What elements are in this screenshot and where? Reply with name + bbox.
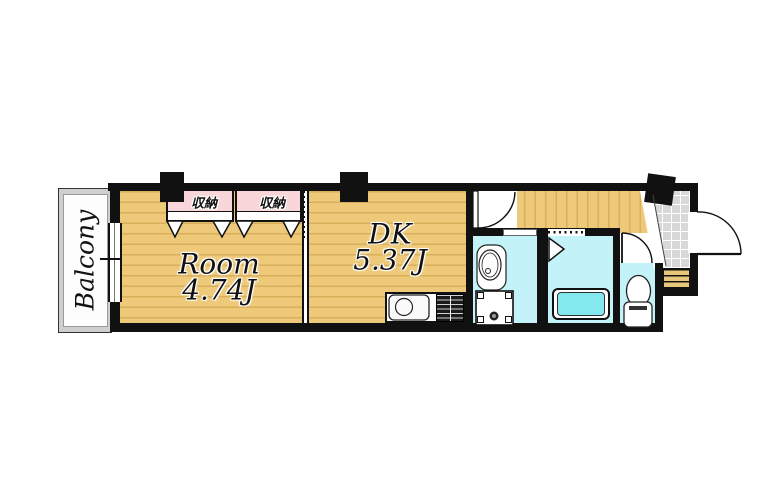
washroom-floor [473,236,537,323]
wall-steps-bottom [660,288,698,296]
wall-top [108,183,698,191]
room-area: 4.74J [178,277,259,303]
wall-dk-washroom [466,191,473,323]
entrance-steps [663,268,690,290]
entrance-door-swing-arc [697,212,741,254]
toilet-door-zone [618,233,655,263]
room-dk-partition-track [302,191,305,238]
room-label: Room 4.74J [178,251,259,303]
floor-plan: Balcony 収納 収納 [0,0,775,500]
hallway-floor [503,191,655,233]
dk-hall-door-zone [473,191,517,228]
dk-area: 5.37J [353,247,427,273]
pillar-3 [644,173,676,206]
wall-toilet-right [655,263,663,332]
bathtub-inner [557,292,605,316]
toilet-room-floor [620,263,655,323]
balcony-window-rail [114,223,115,302]
entrance-door-opening [688,212,700,253]
closet-1-label: 収納 [191,193,217,212]
wall-bath-toilet [613,228,620,331]
pillar-2 [340,172,368,202]
pillar-1 [160,172,184,202]
dk-label: DK 5.37J [353,221,427,273]
bath-door-track [548,229,585,236]
washroom-sliding-door [503,229,537,236]
closet-2-label: 収納 [259,193,285,212]
balcony-label: Balcony [71,210,100,311]
wall-bottom [110,323,663,332]
wall-washroom-bath [537,228,548,323]
balcony-window [108,223,122,302]
balcony-window-center-mark [100,258,122,260]
stove [436,294,464,322]
